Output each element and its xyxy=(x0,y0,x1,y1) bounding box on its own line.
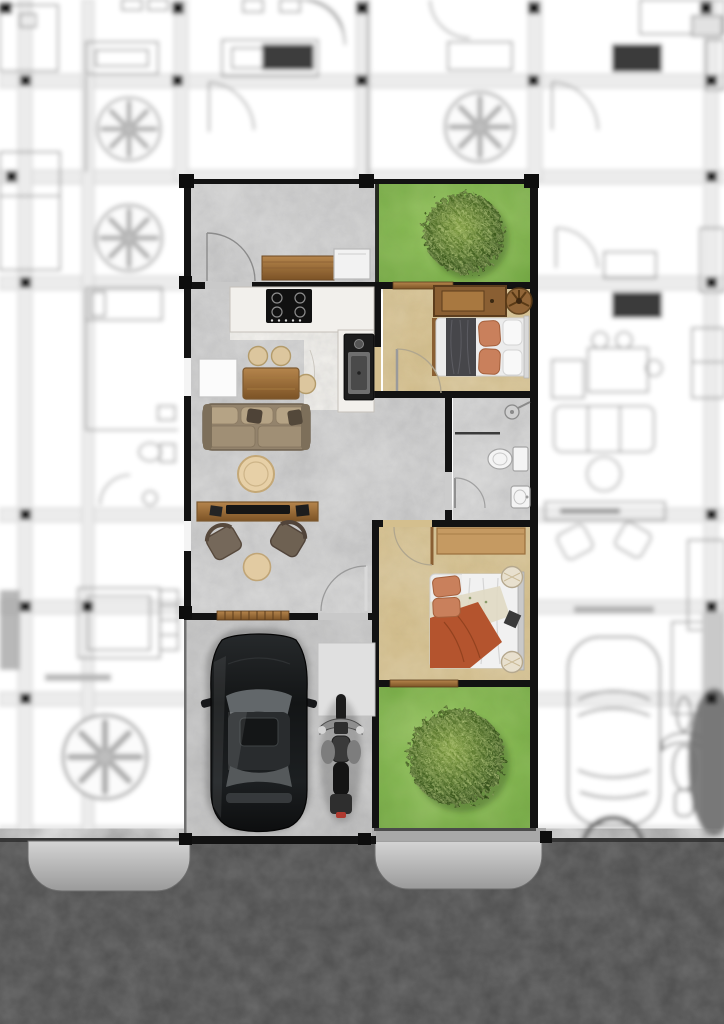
side-table xyxy=(244,554,271,581)
rendered-unit xyxy=(179,174,552,845)
wardrobe xyxy=(434,286,506,316)
coffee-table xyxy=(238,456,274,492)
tv xyxy=(226,505,290,514)
bedside-table xyxy=(502,567,523,588)
driveway-apron-left xyxy=(28,841,190,891)
wood-bench xyxy=(262,256,334,280)
floor-plan-render xyxy=(0,0,724,1024)
slatted-window xyxy=(217,611,289,620)
bed-1 xyxy=(432,316,529,378)
driveway-apron-right xyxy=(375,841,542,889)
dining-table xyxy=(243,368,299,399)
tv-console xyxy=(197,502,318,521)
gas-cooktop xyxy=(266,289,312,323)
washbasin-icon xyxy=(511,486,530,508)
throw-pillow xyxy=(287,409,303,426)
car-icon xyxy=(200,628,318,832)
kitchen-sink xyxy=(344,334,374,400)
wall-shelf xyxy=(437,528,525,554)
street xyxy=(0,838,724,1024)
storage-cabinet xyxy=(334,249,370,279)
white-cabinet xyxy=(199,359,237,397)
sofa xyxy=(203,404,310,450)
throw-pillow xyxy=(246,408,263,424)
ceiling-fan-icon xyxy=(506,288,532,314)
room-carport xyxy=(200,628,375,832)
car-sunroof xyxy=(240,718,278,746)
bedside-table xyxy=(502,652,523,673)
